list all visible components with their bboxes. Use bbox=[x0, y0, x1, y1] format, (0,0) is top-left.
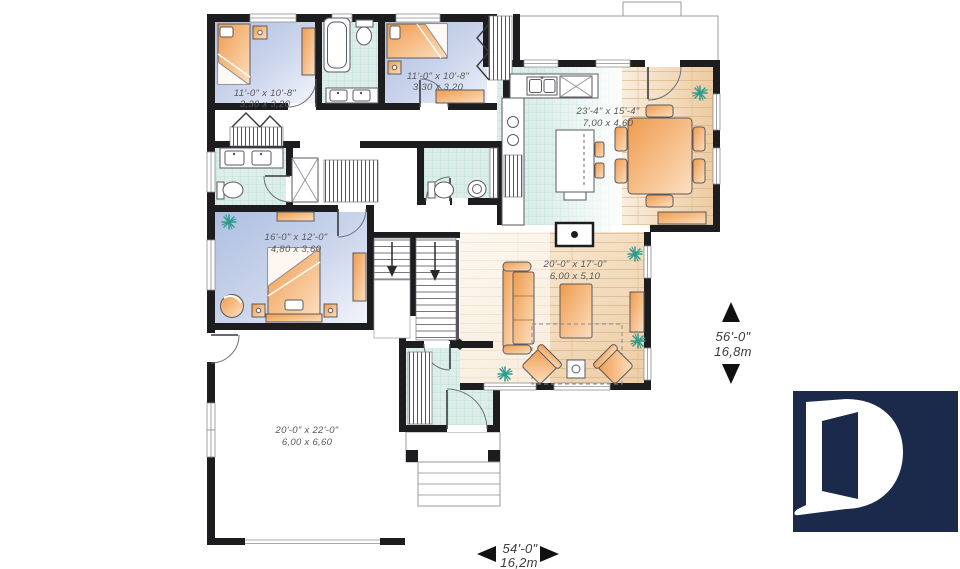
master-dim-metric: 4,80 x 3,60 bbox=[271, 244, 322, 255]
overall-width-metric: 16,2m bbox=[500, 555, 538, 569]
floors bbox=[215, 22, 713, 425]
vanity-sinks bbox=[326, 88, 378, 103]
tv-stand bbox=[277, 212, 314, 221]
brand-logo bbox=[793, 391, 958, 532]
arrow-down-icon bbox=[722, 364, 740, 384]
rear-deck-bump bbox=[623, 2, 681, 16]
shower bbox=[490, 148, 498, 198]
bedroom1-dim-imperial: 11'-0" x 10'-8" bbox=[234, 88, 297, 99]
dresser bbox=[353, 253, 366, 301]
sofa bbox=[503, 262, 534, 354]
fireplace bbox=[556, 223, 593, 246]
front-porch bbox=[406, 432, 500, 462]
floor-plan-drawing: 11'-0" x 10'-8" 3,30 x 3,20 11'-0" x 10'… bbox=[0, 0, 960, 569]
side-table bbox=[567, 360, 585, 378]
rear-deck bbox=[517, 16, 718, 62]
overall-depth-imperial: 56'-0" bbox=[716, 329, 752, 344]
tv-cabinet bbox=[630, 292, 644, 332]
staircase bbox=[374, 238, 459, 340]
living-dim-metric: 6,00 x 5,10 bbox=[550, 271, 601, 282]
garage-dim-imperial: 20'-0" x 22'-0" bbox=[275, 425, 339, 436]
garage-door bbox=[245, 538, 380, 545]
chair bbox=[615, 127, 627, 151]
overall-width-imperial: 54'-0" bbox=[503, 541, 539, 556]
coffee-table bbox=[560, 284, 592, 338]
front-steps bbox=[418, 462, 500, 506]
kitchen-dim-imperial: 23'-4" x 15'-4" bbox=[576, 106, 640, 117]
dresser bbox=[302, 28, 315, 75]
bedroom2-dim-metric: 3,30 x 3,20 bbox=[413, 82, 464, 93]
dining-table bbox=[628, 118, 692, 194]
porch-post-right bbox=[488, 450, 500, 462]
chair bbox=[693, 159, 705, 183]
depth-dimension-marker: 56'-0" 16,8m bbox=[714, 302, 752, 384]
walkin-closet bbox=[324, 160, 378, 202]
foyer-closet bbox=[408, 352, 432, 424]
bed bbox=[266, 248, 322, 322]
toilet bbox=[356, 20, 373, 45]
pedestal-sink bbox=[468, 181, 486, 198]
arrow-left-icon bbox=[477, 546, 496, 562]
kitchen-dim-metric: 7,00 x 4,60 bbox=[583, 118, 634, 129]
chair bbox=[693, 127, 705, 151]
arrow-right-icon bbox=[540, 546, 559, 562]
chair bbox=[646, 105, 673, 117]
bed bbox=[387, 24, 447, 58]
armchair bbox=[221, 295, 244, 318]
arrow-up-icon bbox=[722, 302, 740, 322]
stool bbox=[595, 142, 604, 157]
living-dim-imperial: 20'-0" x 17'-0" bbox=[543, 259, 607, 270]
corner-cabinet bbox=[560, 76, 592, 97]
linen-closet bbox=[292, 158, 318, 202]
stool bbox=[595, 163, 604, 178]
bed bbox=[218, 24, 250, 84]
porch-post-left bbox=[406, 450, 418, 462]
width-dimension-marker: 54'-0" 16,2m bbox=[477, 541, 559, 569]
floor-plan-page: 11'-0" x 10'-8" 3,30 x 3,20 11'-0" x 10'… bbox=[0, 0, 960, 569]
dishwasher bbox=[504, 155, 522, 197]
toilet bbox=[217, 182, 243, 199]
overall-depth-metric: 16,8m bbox=[714, 344, 752, 359]
garage-dim-metric: 6,00 x 6,60 bbox=[282, 437, 333, 448]
chair bbox=[646, 195, 673, 207]
toilet bbox=[428, 182, 454, 198]
chair bbox=[615, 159, 627, 183]
hall-closet bbox=[230, 113, 283, 146]
kitchen-sink bbox=[527, 76, 557, 95]
sideboard bbox=[658, 212, 706, 224]
bedroom1-dim-metric: 3,30 x 3,20 bbox=[240, 99, 291, 110]
master-dim-imperial: 16'-0" x 12'-0" bbox=[265, 232, 328, 243]
bedroom2-dim-imperial: 11'-0" x 10'-8" bbox=[407, 71, 470, 82]
